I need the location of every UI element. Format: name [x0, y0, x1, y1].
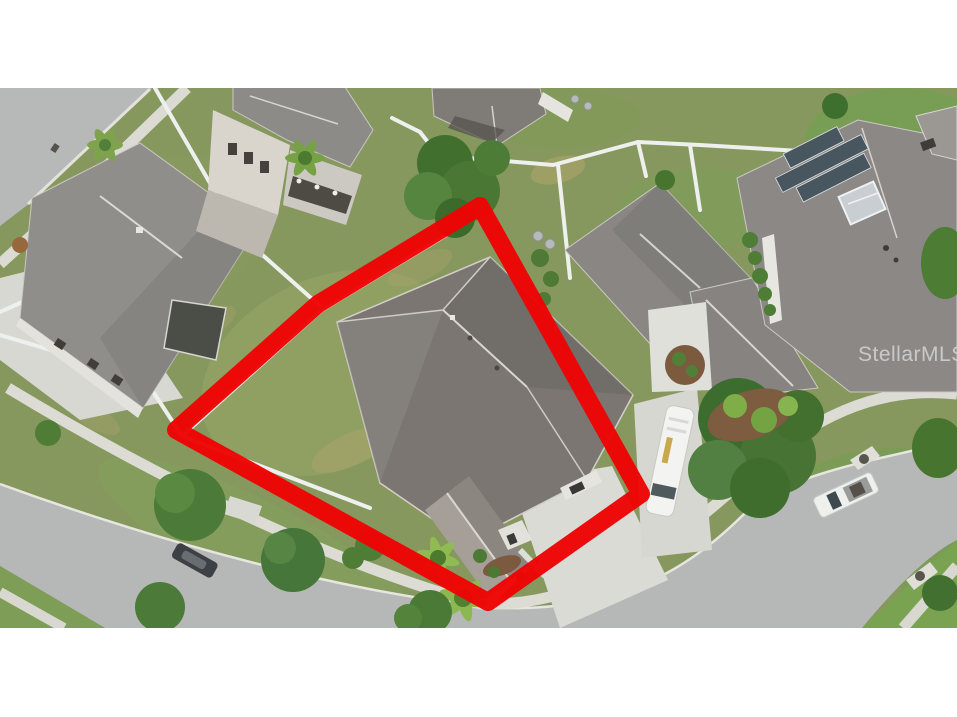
- ac-unit: [533, 231, 543, 241]
- tree: [474, 140, 510, 176]
- shrub: [473, 549, 487, 563]
- shrub: [686, 365, 698, 377]
- palm-center: [723, 394, 747, 418]
- ac-unit: [545, 239, 555, 249]
- manhole: [915, 571, 925, 581]
- shrub: [12, 237, 28, 253]
- palm-center: [298, 151, 312, 165]
- ac-unit: [571, 95, 579, 103]
- shrub: [752, 268, 768, 284]
- shrub: [488, 566, 500, 578]
- aerial-photo-svg: [0, 88, 957, 628]
- porch-post: [333, 191, 338, 196]
- shrub: [748, 251, 762, 265]
- shrub: [764, 304, 776, 316]
- roof-vent: [894, 258, 899, 263]
- listing-photo-page: StellarMLS: [0, 0, 957, 717]
- tree: [730, 458, 790, 518]
- palm-center: [99, 139, 111, 151]
- ac-unit: [584, 102, 592, 110]
- roof-vent: [883, 245, 889, 251]
- shrub: [342, 547, 364, 569]
- palm-center: [778, 396, 798, 416]
- palm-center: [751, 407, 777, 433]
- bottom-letterbox: [0, 628, 957, 717]
- tree: [922, 575, 957, 611]
- manhole: [859, 454, 869, 464]
- shrub: [531, 249, 549, 267]
- tree: [155, 473, 195, 513]
- shrub: [758, 287, 772, 301]
- window: [260, 161, 269, 173]
- shrub: [35, 420, 61, 446]
- tree: [264, 532, 296, 564]
- roof-vent: [495, 366, 500, 371]
- shrub: [742, 232, 758, 248]
- window: [244, 152, 253, 164]
- planting-bed: [665, 345, 705, 385]
- skylight: [136, 227, 143, 233]
- roof-vent: [450, 315, 455, 320]
- shrub: [543, 271, 559, 287]
- shrub: [655, 170, 675, 190]
- shrub: [672, 352, 686, 366]
- window: [228, 143, 237, 155]
- porch-post: [297, 179, 302, 184]
- roof-vent: [468, 336, 473, 341]
- porch-post: [315, 185, 320, 190]
- stellar-mls-watermark: StellarMLS: [858, 343, 957, 367]
- shrub: [822, 93, 848, 119]
- top-letterbox: [0, 0, 957, 88]
- aerial-photo: StellarMLS: [0, 88, 957, 628]
